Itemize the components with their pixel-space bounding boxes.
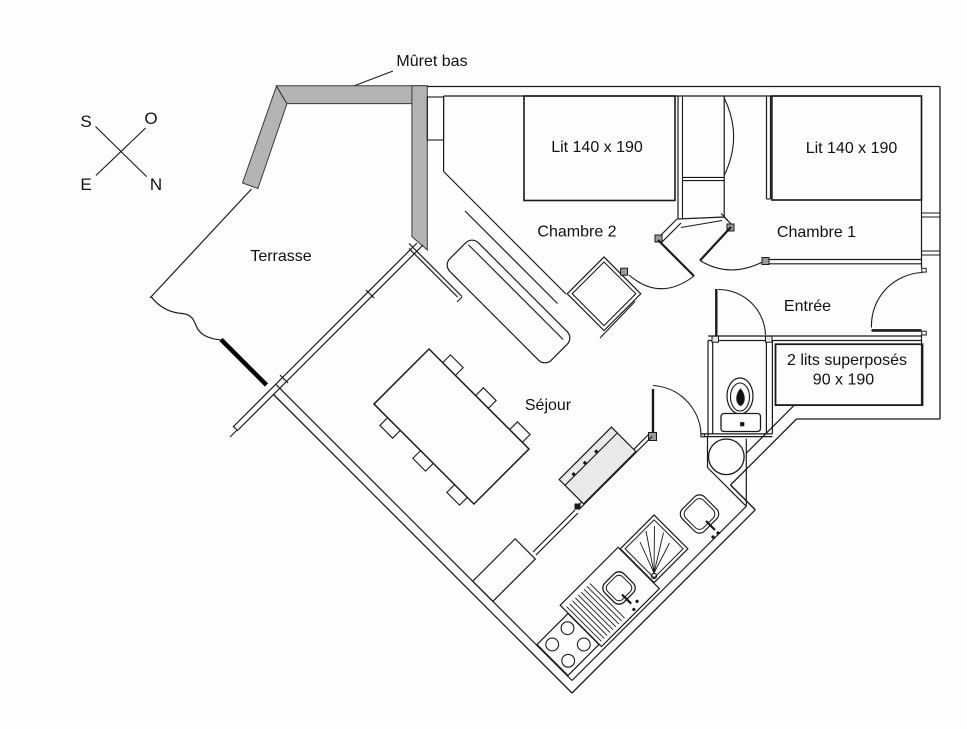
svg-text:N: N — [150, 175, 162, 194]
svg-text:S: S — [80, 112, 91, 131]
svg-text:Mûret bas: Mûret bas — [396, 53, 467, 70]
svg-text:Lit 140 x 190: Lit 140 x 190 — [806, 140, 898, 157]
svg-text:2 lits superposés: 2 lits superposés — [787, 352, 907, 369]
svg-text:E: E — [80, 175, 91, 194]
svg-text:O: O — [144, 109, 157, 128]
svg-text:90 x 190: 90 x 190 — [813, 372, 874, 389]
svg-text:Chambre 1: Chambre 1 — [777, 224, 856, 241]
svg-text:Chambre 2: Chambre 2 — [537, 224, 616, 241]
svg-text:Lit 140 x 190: Lit 140 x 190 — [551, 139, 643, 156]
svg-text:Terrasse: Terrasse — [250, 248, 311, 265]
svg-text:Entrée: Entrée — [784, 298, 831, 315]
svg-text:Séjour: Séjour — [525, 397, 572, 414]
